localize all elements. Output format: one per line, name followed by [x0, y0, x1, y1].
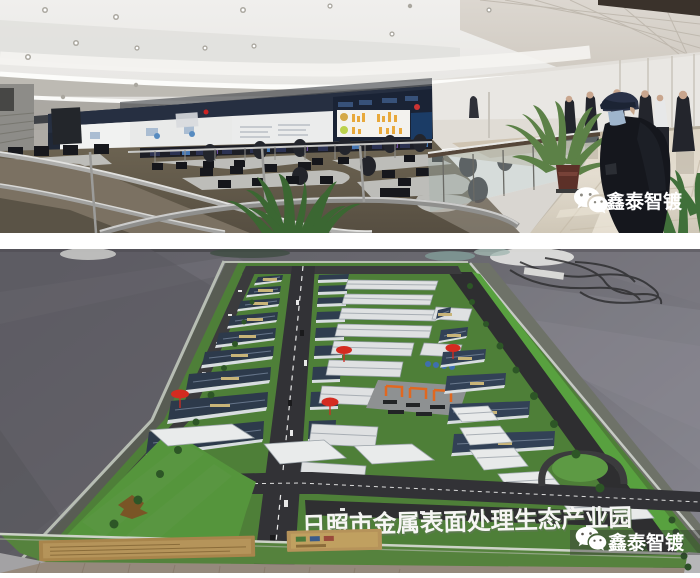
svg-text:鑫泰智镀: 鑫泰智镀: [605, 190, 683, 213]
svg-text:鑫泰智镀: 鑫泰智镀: [607, 531, 685, 554]
